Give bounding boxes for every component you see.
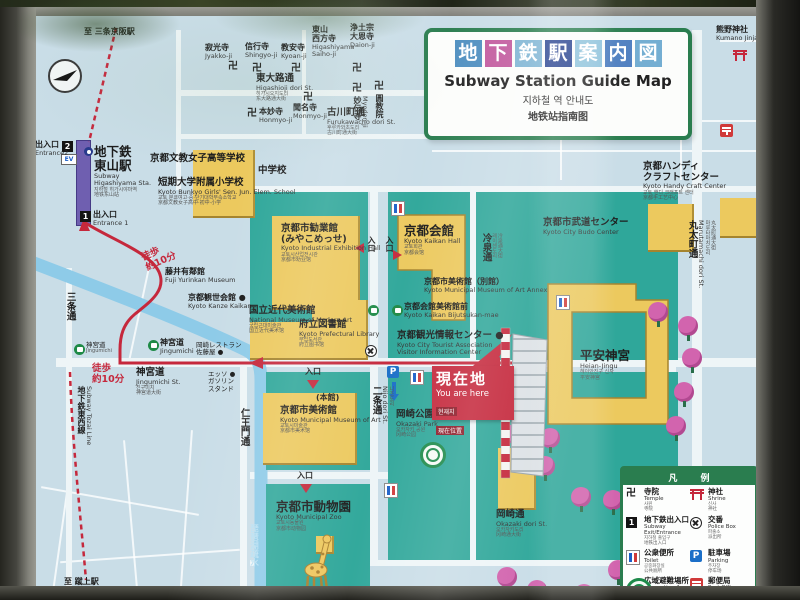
heian-jingu: 平安神宮Heian-Jingu헤이안진구 신사平安神宫 bbox=[580, 349, 630, 381]
jingumichi-busstop-2-line: Jingumichi bbox=[86, 349, 112, 355]
title-chinese: 地铁站指南图 bbox=[428, 108, 688, 123]
kaikan-entrance: 入口 bbox=[384, 236, 393, 252]
heian-jingu-line: 平安神宫 bbox=[580, 376, 630, 382]
police-icon bbox=[690, 517, 702, 529]
pref-library-line: 府立图书馆 bbox=[299, 343, 379, 349]
bunkyo-school-3-line: 京都文教女子高中·初中·小学 bbox=[158, 201, 296, 207]
legend-grid: 卍寺院Temple사원寺院神社Shrine신사神社1地下鉄出入口Subway E… bbox=[623, 485, 755, 600]
legend-cn: 神社 bbox=[708, 507, 726, 512]
legend-item-subway-exit-entrance: 1地下鉄出入口Subway Exit/Entrance지하철 출입구地铁出入口 bbox=[625, 516, 689, 547]
budo-center-line: Kyoto City Budo Center bbox=[543, 229, 629, 236]
title-box: 地下鉄駅案内図 Subway Station Guide Map 지하철 역 안… bbox=[424, 28, 692, 140]
museum-entrance-line: 入口 bbox=[305, 368, 321, 377]
tourist-info-center-line: Visitor Information Center bbox=[397, 349, 504, 356]
jingumichi-st-line: 神宫道大街 bbox=[136, 391, 181, 397]
kaikan-bus-stop: 京都会館美術館前Kyoto Kaikan Bijutsukan-mae bbox=[404, 303, 499, 319]
you-are-here-en: You are here bbox=[436, 389, 510, 399]
biwako-canal-line: 琵琶湖疏水 bbox=[248, 524, 258, 567]
legend-item-text: 交番Police Box파출소派出所 bbox=[708, 516, 736, 541]
bunkyo-school-2-line: 中学校 bbox=[258, 166, 287, 177]
title-kanji-tile: 鉄 bbox=[515, 40, 542, 67]
shingyo-ji: 信行寺Shingyo-ji bbox=[245, 43, 277, 59]
title-kanji-tile: 図 bbox=[635, 40, 662, 67]
toilet-icon bbox=[625, 549, 641, 565]
municipal-museum-honkan: (本館) bbox=[316, 394, 339, 403]
legend-item-police-box: 交番Police Box파출소派出所 bbox=[689, 516, 753, 547]
okazaki-restaurant: 岡崎レストラン佐藤屋 ● bbox=[196, 342, 242, 357]
legend-cn: 地铁出入口 bbox=[644, 541, 689, 546]
title-english: Subway Station Guide Map bbox=[428, 72, 688, 90]
budo-center: 京都市武道センターKyoto City Budo Center bbox=[543, 218, 629, 236]
legend-jp: 駐車場 bbox=[708, 549, 731, 557]
bunkyo-school: 京都文教女子高等学校 bbox=[150, 154, 245, 165]
nijo-st-line: Nijo dori St. bbox=[381, 386, 388, 424]
marutamachi-st-line: 丸太町通大街 bbox=[709, 220, 715, 288]
to-sanjo-keihan-line: 至 三条京阪駅 bbox=[84, 28, 135, 37]
torii-icon bbox=[690, 489, 704, 500]
nijo-st-line: 니조도리 bbox=[388, 386, 394, 424]
kanze-kaikan-line: Kyoto Kanze Kaikan bbox=[188, 303, 252, 310]
legend-item-parking: P駐車場Parking주차장停车场 bbox=[689, 549, 753, 574]
legend-jp: 交番 bbox=[708, 516, 736, 524]
legend-item-text: 地下鉄出入口Subway Exit/Entrance지하철 출입구地铁出入口 bbox=[644, 516, 689, 547]
entrance1-label: 出入口Entrance 1 bbox=[93, 211, 128, 227]
police-icon bbox=[689, 516, 705, 532]
esso-gas-stand-line: スタンド bbox=[208, 386, 235, 393]
you-are-here-callout: 現在地 You are here 현재지 現在位置 bbox=[432, 366, 514, 420]
daion-ji: 浄土宗大恩寺Daion-ji bbox=[350, 24, 375, 49]
legend-item-shrine: 神社Shrine신사神社 bbox=[689, 488, 753, 513]
kyoto-kaikan: 京都会館Kyoto Kaikan Hall교토회관京都会馆 bbox=[404, 224, 460, 256]
legend-jp: 神社 bbox=[708, 488, 726, 496]
entrance2-label-line: Entrance2 bbox=[35, 150, 68, 157]
zoo-entrance-line: 入口 bbox=[297, 472, 313, 481]
legend-jp: 郵便局 bbox=[708, 577, 737, 585]
sanjo-st-line: 三条通 bbox=[64, 292, 75, 321]
municipal-museum-line: 京都市美术馆 bbox=[280, 429, 381, 435]
photo-top-edge bbox=[0, 0, 800, 7]
park-icon: P bbox=[690, 550, 702, 562]
legend-item-temple: 卍寺院Temple사원寺院 bbox=[625, 488, 689, 513]
park-icon: P bbox=[689, 549, 705, 565]
okazaki-restaurant-line: 佐藤屋 ● bbox=[196, 349, 242, 356]
title-kanji-tile: 案 bbox=[575, 40, 602, 67]
legend-item-text: 神社Shrine신사神社 bbox=[708, 488, 726, 513]
jyakko-ji-line: Jyakko-ji bbox=[205, 53, 232, 60]
okazaki-park-line: 冈崎公园 bbox=[396, 433, 438, 439]
title-kanji-tile: 内 bbox=[605, 40, 632, 67]
torii-icon bbox=[689, 488, 705, 504]
toilet-icon bbox=[626, 550, 640, 565]
marutamachi-st-line: Marutamachi dori St. bbox=[697, 220, 704, 288]
jingumichi-busstop: 神宮道Jingumichi bbox=[160, 339, 194, 355]
saiho-ji-line: Saiho-ji bbox=[312, 51, 354, 58]
legend-item-text: 寺院Temple사원寺院 bbox=[644, 488, 664, 513]
higashioji-st: 東大路通Higashioji dori St.히가시오지도리东大路通大街 bbox=[256, 74, 313, 103]
pref-library: 府立図書館Kyoto Prefectural Library부립도서관府立图书馆 bbox=[299, 320, 379, 349]
handy-craft-center: 京都ハンディクラフトセンターKyoto Handy Craft Center교토… bbox=[643, 162, 726, 202]
legend-cn: 停车场 bbox=[708, 569, 731, 574]
kaikan-entrance-line: 入口 bbox=[384, 236, 393, 252]
handy-craft-center-line: 京都手工艺中心 bbox=[643, 196, 726, 202]
municipal-zoo-line: 京都市動物園 bbox=[276, 500, 351, 514]
title-kanji-tile: 地 bbox=[455, 40, 482, 67]
bunkyo-school-2: 中学校 bbox=[258, 166, 287, 177]
fujii-yurinkan-line: Fuji Yurinkan Museum bbox=[165, 277, 236, 284]
biwako-canal: 琵琶湖疏水 bbox=[248, 524, 258, 567]
legend-header: 凡 例 bbox=[623, 469, 755, 485]
furukawacho-st-line: 古川町通大街 bbox=[327, 131, 395, 137]
higashiyama-station: 地下鉄東山駅SubwayHigashiyama Sta.지하철 히가시야마역地铁… bbox=[94, 145, 151, 199]
entrance1-label-line: Entrance 1 bbox=[93, 220, 128, 227]
esso-gas-stand: エッソ ●ガソリンスタンド bbox=[208, 371, 235, 393]
tourist-info-center: 京都観光情報センター ●Kyoto City Tourist Associati… bbox=[397, 331, 504, 356]
title-kanji-tile: 駅 bbox=[545, 40, 572, 67]
messe-entrance: 入口 bbox=[366, 236, 375, 252]
kyoan-ji: 教安寺Kyoan-ji bbox=[281, 44, 307, 60]
okazaki-dori-st-line: 冈崎通大街 bbox=[496, 533, 547, 539]
walk-10min-b-line: 約10分 bbox=[92, 375, 124, 386]
manji-icon: 卍 bbox=[626, 489, 636, 499]
legend-jp: 地下鉄出入口 bbox=[644, 516, 689, 524]
title-korean: 지하철 역 안내도 bbox=[428, 92, 688, 107]
bunkyo-school-3: 短期大学附属小学校Kyoto Bunkyo Girls' Sen. Jun. E… bbox=[158, 178, 296, 207]
kaikan-bus-stop-line: Kyoto Kaikan Bijutsukan-mae bbox=[404, 312, 499, 319]
bunkyo-school-line: 京都文教女子高等学校 bbox=[150, 154, 245, 165]
municipal-zoo: 京都市動物園Kyoto Municipal Zoo교토시동물원京都市动物园 bbox=[276, 500, 351, 532]
title-kanji-tile: 下 bbox=[485, 40, 512, 67]
legend-en: Subway Exit/Entrance bbox=[644, 524, 689, 536]
niomon-st-line: 仁王門通 bbox=[238, 408, 249, 446]
jingumichi-busstop-2: 神宮道Jingumichi bbox=[86, 342, 112, 355]
municipal-museum: 京都市美術館Kyoto Municipal Museum of Art교토시미술… bbox=[280, 406, 381, 435]
legend-item-toilet: 公衆便所Toilet공중화장실公共厕所 bbox=[625, 549, 689, 574]
messe-entrance-line: 入口 bbox=[366, 236, 375, 252]
zoo-entrance: 入口 bbox=[297, 472, 313, 481]
higashiyama-station-line: 東山駅 bbox=[94, 159, 151, 173]
jyakko-ji: 寂光寺Jyakko-ji bbox=[205, 44, 232, 60]
niomon-st: 仁王門通 bbox=[238, 408, 249, 446]
legend-cn: 派出所 bbox=[708, 535, 736, 540]
ent-icon: 1 bbox=[625, 516, 641, 532]
legend-jp: 寺院 bbox=[644, 488, 664, 496]
sign-frame-right bbox=[756, 0, 800, 600]
okazaki-dori-st: 岡崎通Okazaki dori St.오카자키도리冈崎通大街 bbox=[496, 510, 547, 539]
marutamachi-st: 丸太町通Marutamachi dori St.마루타마치도리丸太町通大街 bbox=[686, 220, 715, 288]
walk-10min-b: 徒歩約10分 bbox=[92, 364, 124, 385]
miyako-messe-line: 京都市劝业馆 bbox=[281, 258, 381, 264]
tozai-line-line: 地下鉄東西線 bbox=[76, 386, 85, 445]
reisen-st-line: 冷泉通大街 bbox=[496, 233, 502, 262]
furukawacho-st: 古川町通Furukawacho dori St.후루카와초도리古川町通大街 bbox=[327, 108, 395, 137]
legend-en: Parking bbox=[708, 558, 731, 564]
legend-cn: 公共厕所 bbox=[644, 569, 674, 574]
to-sanjo-keihan: 至 三条京阪駅 bbox=[84, 28, 135, 37]
jingumichi-busstop-line: Jingumichi bbox=[160, 348, 194, 355]
you-are-here-jp: 現在地 bbox=[436, 368, 510, 389]
kumano-jinja-line: Kumano Jinja bbox=[716, 35, 758, 42]
marutamachi-st-line: 丸太町通 bbox=[686, 220, 697, 288]
saiho-ji: 東山西方寺HigashiyamaSaiho-ji bbox=[312, 26, 354, 58]
shingyo-ji-line: Shingyo-ji bbox=[245, 52, 277, 59]
jingumichi-st: 神宮道Jingumichi St.진구미치神宫道大街 bbox=[136, 368, 181, 397]
higashiyama-station-line: 地铁东山站 bbox=[94, 193, 151, 199]
tozai-line: 地下鉄東西線Subway Tozai Line bbox=[76, 386, 92, 445]
kumano-jinja: 熊野神社Kumano Jinja bbox=[716, 26, 758, 42]
monmyo-ji: 聞名寺Monmyo-ji bbox=[293, 104, 327, 120]
museum-entrance: 入口 bbox=[305, 368, 321, 377]
kanze-kaikan: 京都観世会館 ●Kyoto Kanze Kaikan bbox=[188, 294, 252, 310]
sanjo-st: 三条通 bbox=[64, 292, 75, 321]
honmyo-ji: 本妙寺Honmyo-ji bbox=[259, 108, 292, 124]
sign-frame-left bbox=[0, 7, 36, 600]
legend-box: 凡 例 卍寺院Temple사원寺院神社Shrine신사神社1地下鉄出入口Subw… bbox=[620, 466, 758, 600]
ent-icon: 1 bbox=[626, 517, 637, 528]
legend-cn: 寺院 bbox=[644, 507, 664, 512]
kyoan-ji-line: Kyoan-ji bbox=[281, 53, 307, 60]
you-are-here-cn: 現在位置 bbox=[436, 426, 464, 435]
tozai-line-line: Subway Tozai Line bbox=[85, 386, 92, 445]
daion-ji-line: Daion-ji bbox=[350, 42, 375, 49]
museum-annex: 京都市美術館（別館）Kyoto Municipal Museum of Art … bbox=[424, 278, 547, 294]
heian-jingu-line: 平安神宮 bbox=[580, 349, 630, 363]
legend-item-text: 公衆便所Toilet공중화장실公共厕所 bbox=[644, 549, 674, 574]
fujii-yurinkan: 藤井有鄰館Fuji Yurinkan Museum bbox=[165, 268, 236, 284]
kyoto-kaikan-line: 京都会館 bbox=[404, 224, 460, 238]
museum-annex-line: Kyoto Municipal Museum of Art Annex bbox=[424, 287, 547, 294]
subway-guide-map-photo: 2EV1卍卍卍卍卍卍卍卍P 至 三条京阪駅出入口Entrance2地下鉄東山駅S… bbox=[0, 0, 800, 600]
honmyo-ji-line: Honmyo-ji bbox=[259, 117, 292, 124]
you-are-here-kr: 현재지 bbox=[436, 407, 457, 416]
title-kanji-tiles: 地下鉄駅案内図 bbox=[428, 40, 688, 67]
legend-item-text: 駐車場Parking주차장停车场 bbox=[708, 549, 731, 574]
sign-frame-bottom bbox=[0, 586, 800, 600]
municipal-museum-honkan-line: (本館) bbox=[316, 394, 339, 403]
reisen-st: 冷泉通레이센도리冷泉通大街 bbox=[480, 233, 502, 262]
entrance2-label: 出入口Entrance2 bbox=[35, 141, 68, 157]
kyoto-kaikan-line: 京都会馆 bbox=[404, 251, 460, 257]
reisen-st-line: 冷泉通 bbox=[480, 233, 491, 262]
manji-icon: 卍 bbox=[625, 488, 641, 504]
higashiyama-station-line: 地下鉄 bbox=[94, 145, 151, 159]
municipal-zoo-line: 京都市动物园 bbox=[276, 527, 351, 533]
legend-jp: 広域避難場所 bbox=[644, 577, 689, 585]
legend-jp: 公衆便所 bbox=[644, 549, 674, 557]
monmyo-ji-line: Monmyo-ji bbox=[293, 113, 327, 120]
sign-frame-top bbox=[0, 7, 800, 16]
